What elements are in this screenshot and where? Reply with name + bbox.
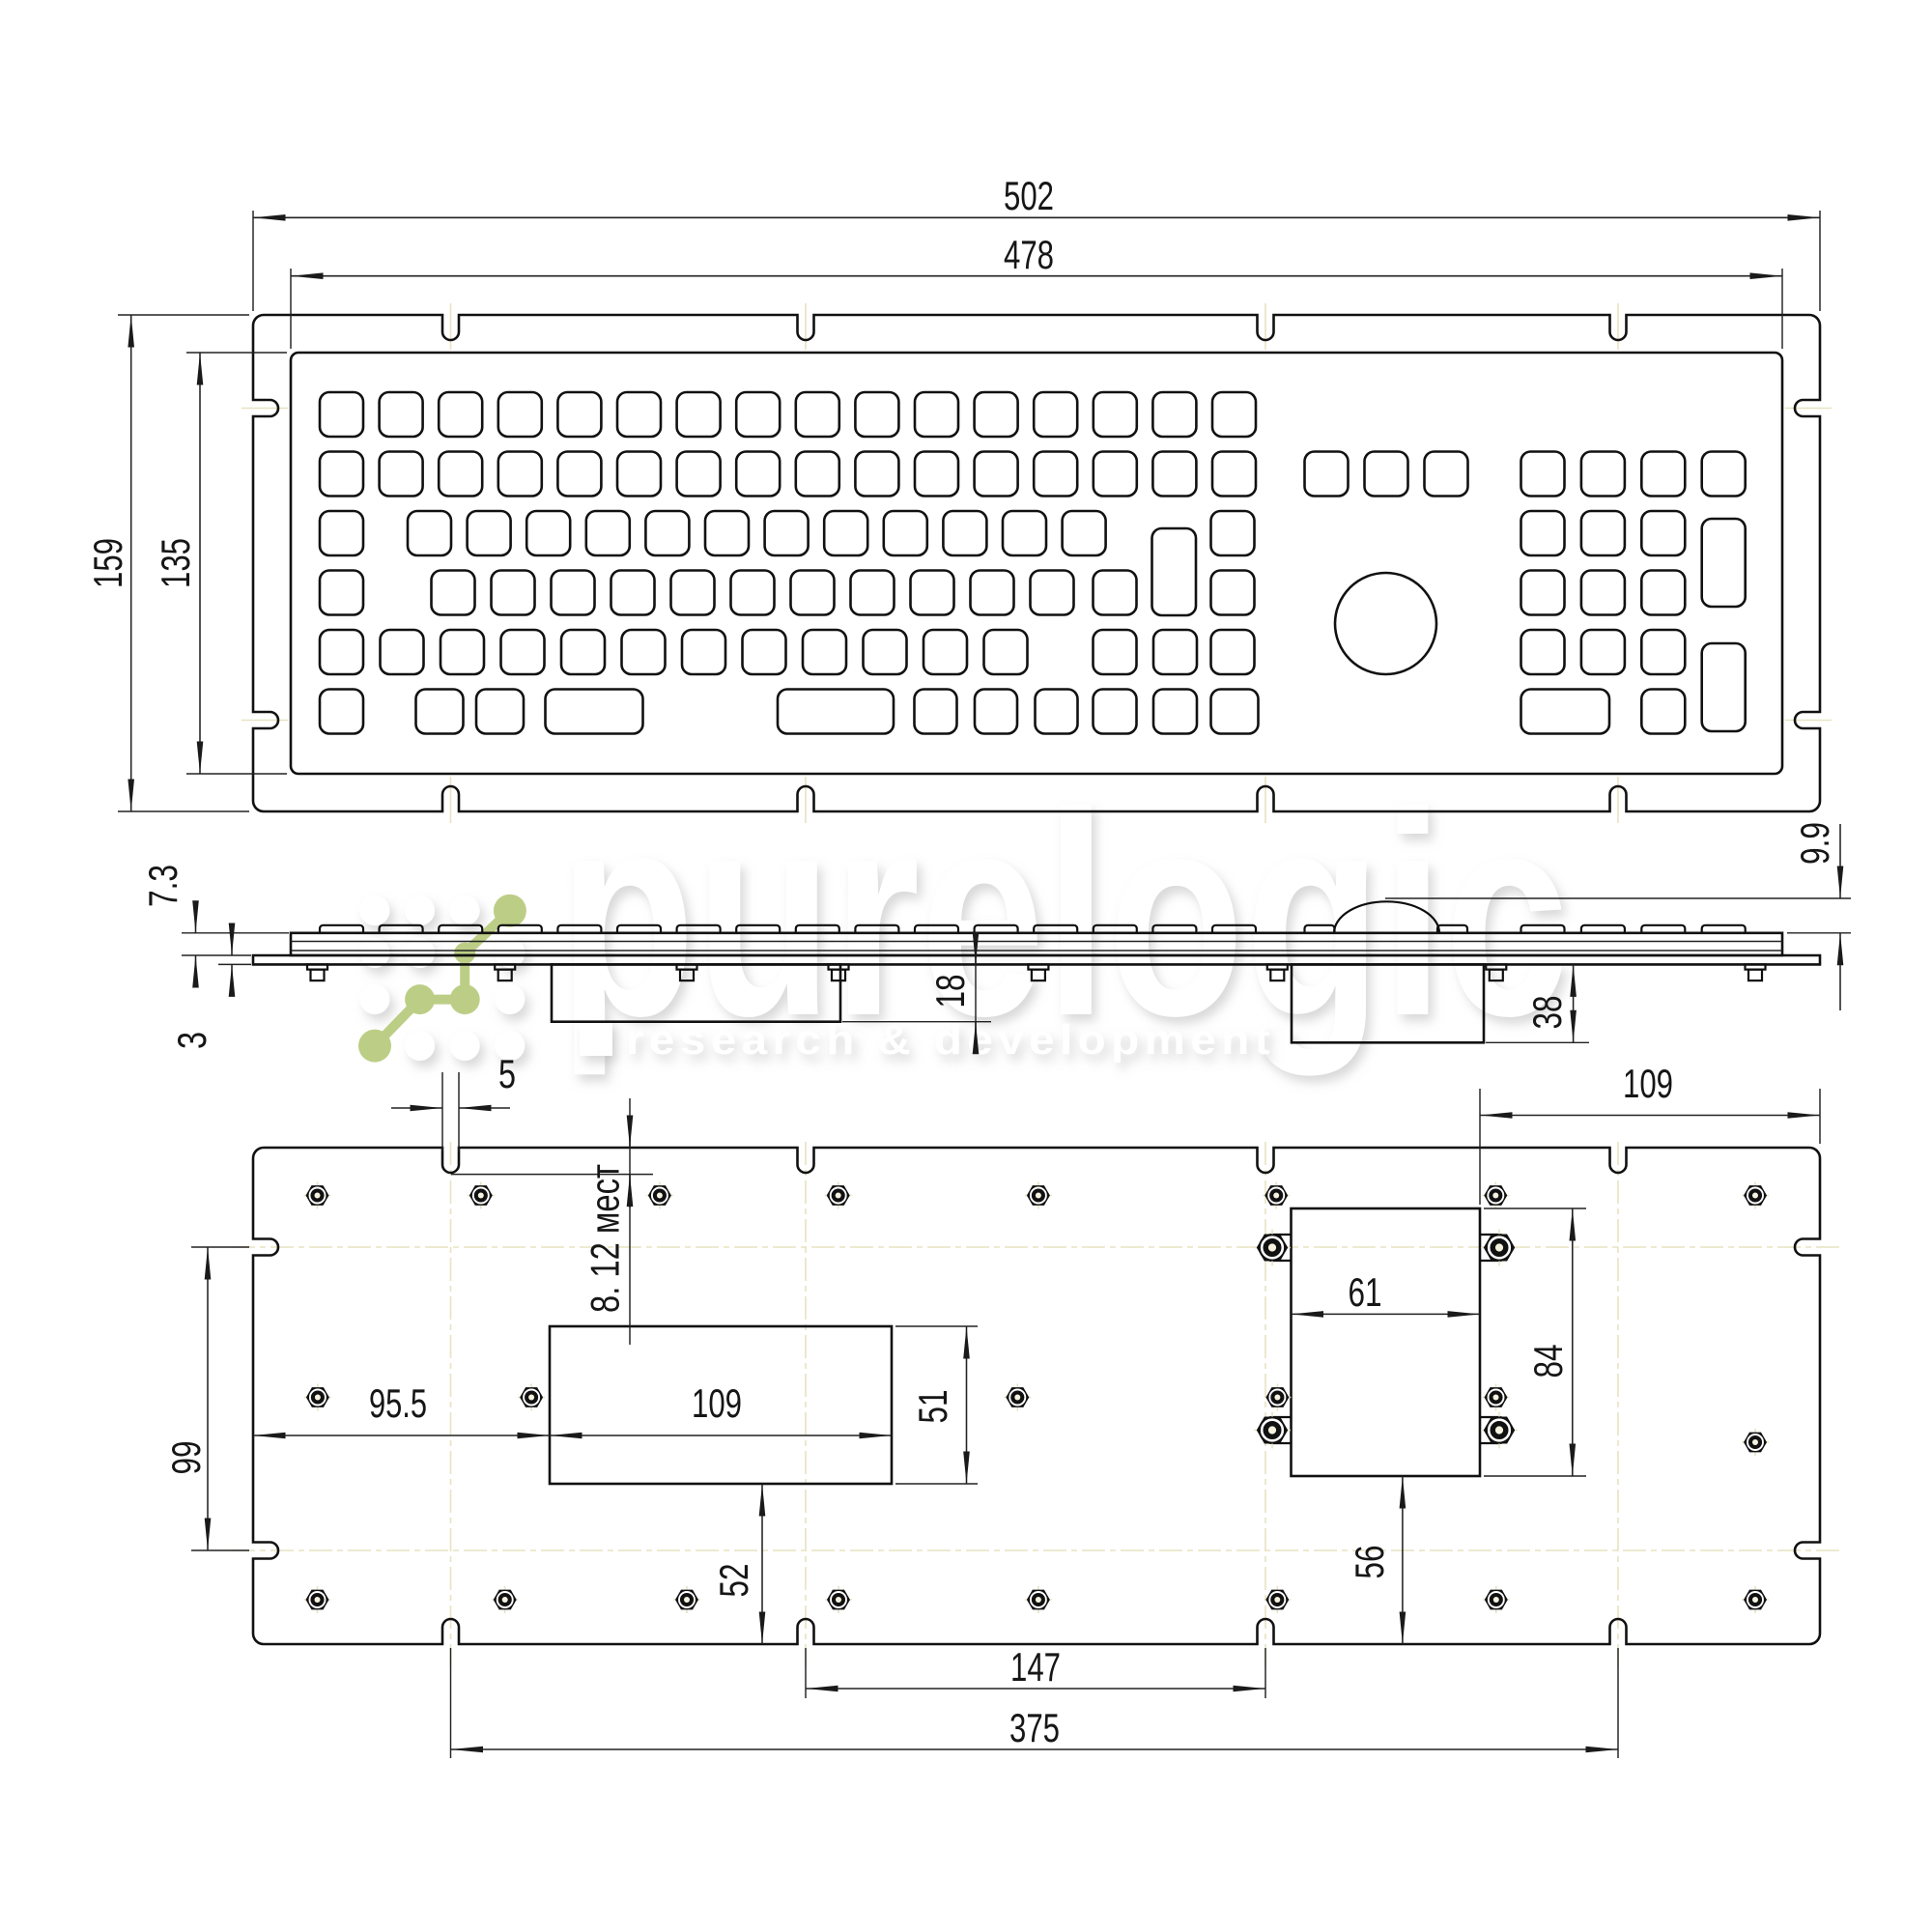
svg-text:9.9: 9.9 [1792,822,1837,865]
svg-text:109: 109 [692,1380,742,1426]
svg-text:3: 3 [169,1032,214,1049]
svg-text:478: 478 [1004,232,1054,277]
svg-text:56: 56 [1347,1546,1392,1579]
svg-text:147: 147 [1010,1644,1061,1690]
svg-text:61: 61 [1349,1269,1382,1315]
svg-text:375: 375 [1009,1705,1060,1750]
svg-text:5: 5 [498,1051,516,1096]
svg-text:8. 12 мест: 8. 12 мест [582,1164,628,1313]
svg-text:135: 135 [153,538,198,588]
svg-text:51: 51 [910,1390,955,1424]
svg-text:research & development: research & development [626,1016,1275,1064]
svg-text:38: 38 [1524,996,1570,1030]
svg-text:84: 84 [1525,1345,1571,1378]
svg-text:99: 99 [163,1441,209,1475]
svg-text:95.5: 95.5 [369,1380,427,1426]
svg-text:109: 109 [1623,1061,1673,1106]
svg-text:18: 18 [927,975,973,1009]
svg-text:7.3: 7.3 [140,865,185,907]
svg-text:159: 159 [85,538,130,588]
svg-text:52: 52 [711,1564,756,1598]
svg-text:502: 502 [1004,173,1054,218]
